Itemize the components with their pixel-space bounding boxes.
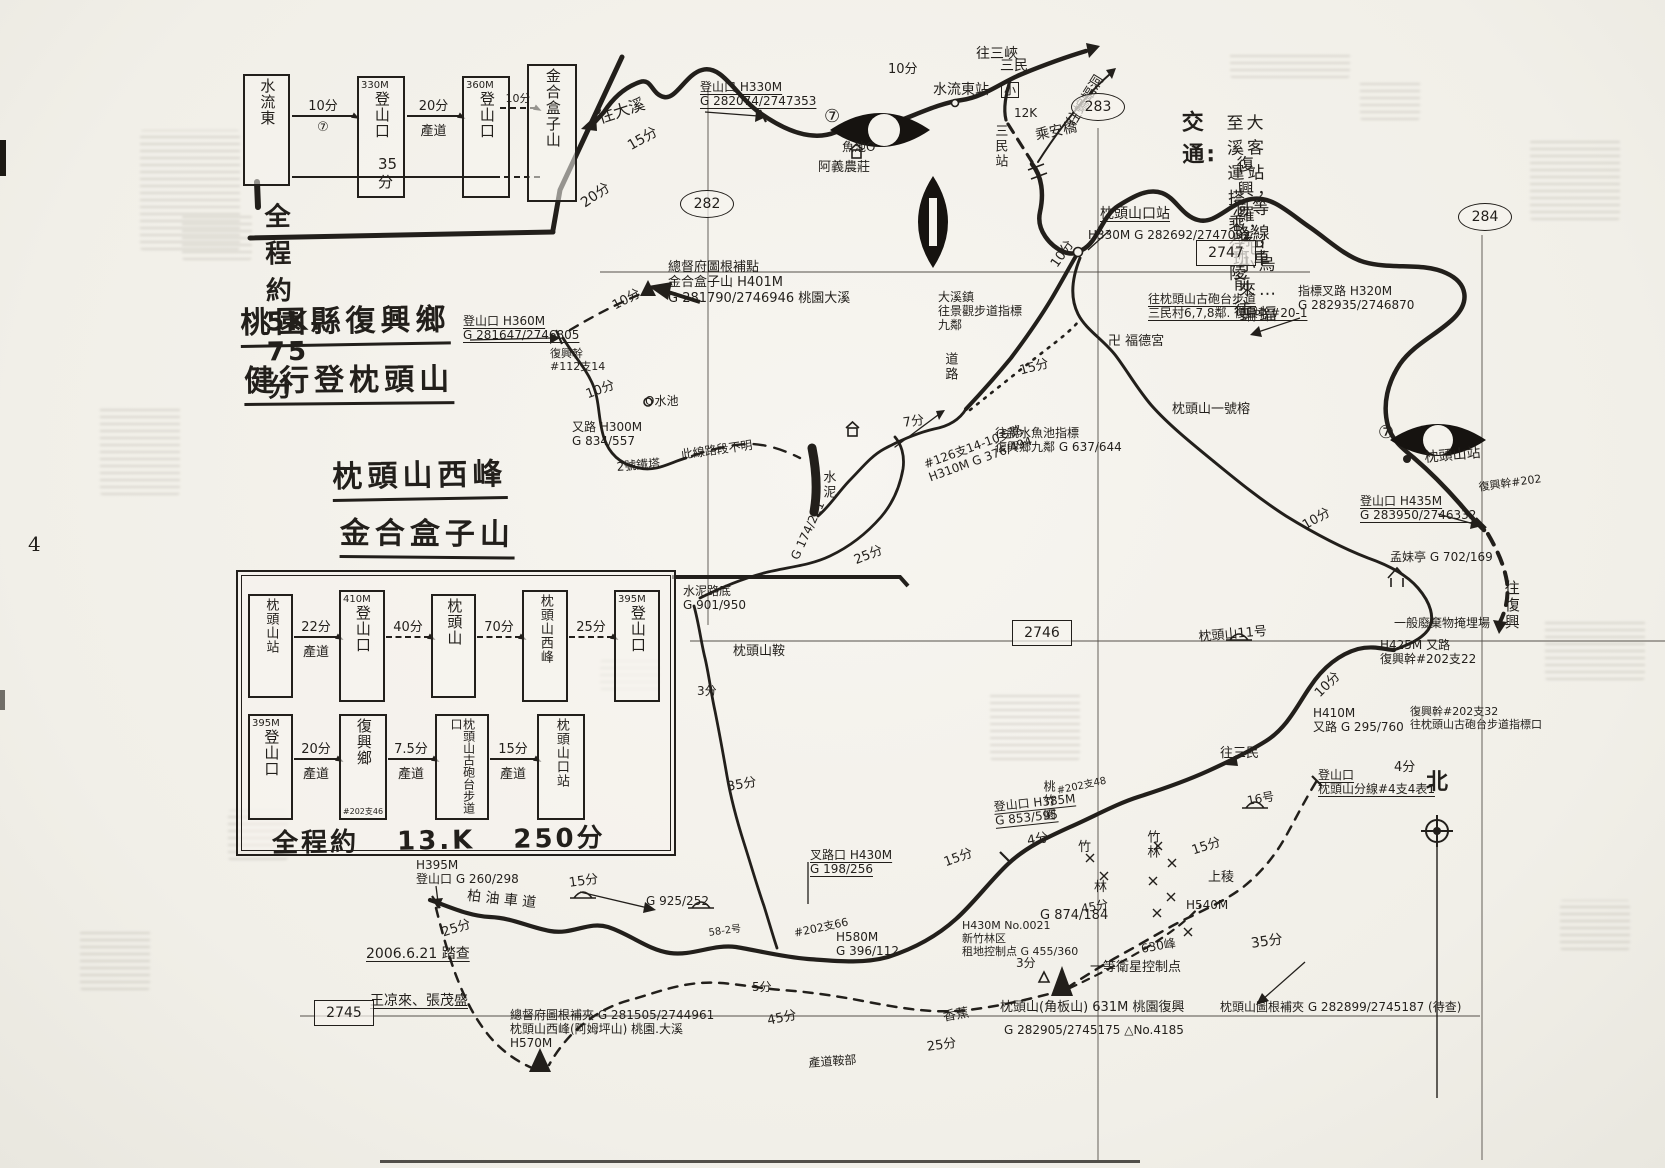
page-title-line: 枕頭山西峰	[332, 449, 508, 502]
map-label: 25分	[440, 917, 473, 941]
stop-elevation: 410M	[343, 595, 371, 605]
grid-oval-284: 284	[1458, 203, 1512, 231]
route-stop-name: 登山口	[478, 91, 494, 194]
map-label: 3分	[697, 684, 717, 698]
map-label: 15分	[625, 124, 661, 154]
total-time: 35分	[378, 156, 397, 191]
grid-box-2747: 2747	[1196, 240, 1256, 266]
route-stop-name: 金合盒子山	[544, 68, 560, 198]
route-stop-box: 金合盒子山	[527, 64, 577, 202]
leg-via: 產道	[294, 763, 338, 782]
map-label: H430M No.0021 新竹林区 租地控制点 G 455/360	[962, 920, 1078, 959]
route-leg: 25分	[569, 616, 613, 638]
map-label: 魚池O	[842, 140, 875, 154]
route-stop-name: 登山口	[263, 729, 279, 816]
map-label: 枕頭山站	[1424, 445, 1481, 466]
route-stop-name: 枕頭山站	[264, 598, 278, 694]
map-label: 小	[1001, 82, 1019, 98]
map-label: 15分	[942, 846, 975, 871]
scan-edge-mark	[0, 140, 6, 176]
leg-time: 20分	[407, 95, 460, 117]
map-label: 25分	[852, 543, 885, 568]
map-label: 柏 油 車 道	[466, 888, 537, 912]
map-label: 指標叉路 H320M G 282935/2746870	[1298, 284, 1414, 312]
map-label: 又路 H300M G 834/557	[572, 420, 642, 448]
map-label: 總督府圖根補夾 G 281505/2744961 枕頭山西峰(阿姆坪山) 桃園.…	[510, 1008, 714, 1050]
leg-time: 40分	[386, 616, 430, 638]
grid-label: 2747	[1208, 245, 1244, 261]
map-label: 10分	[1048, 238, 1078, 271]
map-label: 15分	[1190, 835, 1223, 859]
map-label: 10分	[888, 62, 918, 77]
map-label: 叉路口 H430M G 198/256	[810, 848, 892, 876]
map-label: 三民站	[992, 124, 1007, 169]
leg-via: 產道	[490, 763, 536, 782]
route-leg: 20分 產道	[407, 95, 460, 139]
route-leg: 70分	[477, 616, 521, 638]
route-leg: 7.5分 產道	[388, 738, 434, 782]
map-label: 登山口 H385M G 853/595	[993, 791, 1078, 828]
route-stop-box: 410M 登山口	[339, 590, 385, 702]
stop-elevation: 360M	[466, 81, 494, 91]
map-label: G 174/221	[788, 499, 827, 562]
scanned-map-page: 往大溪15分20分登山口 H330M G 282074/274735310分水流…	[0, 0, 1665, 1168]
map-label: 復興幹#202支32 往枕頭山古砲台步道指標口	[1410, 706, 1542, 732]
map-label: 35分	[1250, 932, 1284, 953]
map-label: 枕頭山鞍	[733, 644, 785, 659]
map-label: 一等衛星控制点	[1090, 960, 1181, 975]
route-stop-name: 水流東	[259, 78, 275, 182]
route-stop-name: 枕頭山口站	[554, 718, 568, 816]
leg-time: 70分	[477, 616, 521, 638]
page-title-line: 金合盒子山	[340, 508, 515, 560]
map-label: 三民	[1000, 58, 1028, 75]
map-label: 630峰	[1140, 936, 1177, 956]
scan-edge-mark	[0, 690, 5, 710]
map-label: 15分	[568, 872, 599, 891]
map-label: 孟妹亭 G 702/169	[1390, 550, 1493, 564]
map-label: 枕頭山口站	[1100, 206, 1170, 223]
map-label: 5分	[752, 980, 772, 994]
map-label: 枕頭山11号	[1198, 624, 1268, 645]
grid-box-2746: 2746	[1012, 620, 1072, 646]
map-label: H540M	[1186, 898, 1228, 912]
map-label: 10分	[584, 378, 617, 403]
map-label: 水泥路底 G 901/950	[683, 584, 746, 612]
map-label: 2號鐵塔	[616, 456, 661, 474]
map-label: 一般廢棄物掩埋場	[1394, 616, 1490, 630]
route-stop-box: 枕頭山西峰	[522, 590, 568, 702]
map-label: 卍 福德宮	[1108, 334, 1164, 349]
grid-label: 282	[694, 196, 721, 212]
route-summary: 全程約5K. 75分	[264, 196, 325, 405]
route-stop-name: 復興鄉	[355, 718, 371, 808]
map-label: 往枕頭山古砲台步道 三民村6,7,8鄰. 復興幹#20-1	[1148, 292, 1307, 320]
map-label: 王凉來、張茂盛	[370, 993, 468, 1010]
route-leg: 22分 產道	[294, 616, 338, 660]
map-label: 16号	[1246, 789, 1275, 808]
map-label: 總督府圖根補點 金合盒子山 H401M G 281790/2746946 桃園大…	[668, 260, 850, 306]
stop-elevation: 330M	[361, 81, 389, 91]
route-stop-box: 395M 登山口	[614, 590, 660, 702]
route-leg: 40分	[386, 616, 430, 638]
map-label: 竹林	[1144, 830, 1159, 860]
grid-label: 2746	[1024, 625, 1060, 641]
map-label: 15分	[1018, 356, 1051, 378]
map-label: 上稜	[1208, 870, 1234, 885]
map-label: 35分	[726, 775, 758, 795]
route-stop-box: 復興鄉 #202支46	[339, 714, 387, 820]
map-label: 10分	[1300, 505, 1333, 533]
stop-subnote: #202支46	[343, 808, 383, 816]
transport-heading: 交通:	[1181, 104, 1217, 169]
route-stop-name: 登山口	[354, 605, 370, 698]
stop-elevation: 395M	[252, 719, 280, 729]
leg-via: 產道	[388, 763, 434, 782]
map-label: 枕頭山(角板山) 631M 桃園復興	[1000, 1000, 1184, 1015]
map-label: 復興幹#202	[1478, 473, 1542, 495]
map-label: 25分	[926, 1036, 957, 1055]
route-leg: 15分 產道	[490, 738, 536, 782]
route-stop-name: 枕頭山	[446, 598, 462, 694]
map-label: 香蕉	[942, 1005, 970, 1025]
grid-label: 2745	[326, 1005, 362, 1021]
leg-time: 7.5分	[388, 738, 434, 760]
leg-time: 22分	[294, 616, 338, 638]
map-label: G 874/184	[1040, 908, 1108, 923]
map-label: 登山口 H360M G 281647/2746805	[463, 314, 579, 342]
grid-oval-282: 282	[680, 190, 734, 218]
map-label: ⑦	[1378, 422, 1394, 443]
map-label: H580M G 396/112	[836, 930, 899, 958]
grid-box-2745: 2745	[314, 1000, 374, 1026]
route-stop-name: 登山口	[629, 605, 645, 698]
route-leg: 10分 ⑦	[292, 95, 354, 135]
map-label: O水池	[645, 394, 678, 408]
map-label: 往復興	[1502, 580, 1520, 631]
route-stop-name: 枕頭山西峰	[538, 594, 552, 698]
map-label: H395M 登山口 G 260/298	[416, 858, 519, 886]
route-summary: 全程約 13.K 250分	[272, 817, 606, 860]
leg-via: 產道	[407, 120, 460, 139]
map-label: 20分	[578, 180, 614, 212]
map-label: 竹	[1078, 840, 1091, 855]
map-label: G 925/252	[646, 894, 709, 908]
map-label: 枕頭山一號榕	[1172, 402, 1250, 417]
grid-label: 283	[1085, 99, 1112, 115]
map-label: ⑦	[824, 106, 840, 127]
leg-via: 產道	[294, 641, 338, 660]
map-label: 阿義農莊	[818, 160, 870, 175]
map-label: 10分	[1312, 669, 1344, 701]
route-stop-box: 枕頭山古砲台步道口	[435, 714, 489, 820]
route-diagram-frame: 枕頭山站 22分 產道 410M 登山口 40分 枕頭山 70分 枕頭山西峰	[236, 570, 676, 856]
map-label: H410M 又路 G 295/760	[1313, 706, 1404, 734]
map-label: 水泥	[820, 470, 835, 500]
map-label: 道路	[942, 352, 957, 382]
route-stop-name: 枕頭山古砲台步道口	[449, 718, 474, 816]
route-stop-box: 枕頭山站	[248, 594, 293, 698]
leg-time: 15分	[490, 738, 536, 760]
map-label: 登山口 H435M G 283950/2746332	[1360, 494, 1476, 522]
map-label: #126支14-10支路 H310M G 376/494	[922, 421, 1034, 485]
route-stop-box: 水流東	[243, 74, 290, 186]
page-number: 4	[28, 532, 41, 556]
map-label: 產道鞍部	[808, 1053, 857, 1070]
leg-time: 20分	[294, 738, 338, 760]
stop-elevation: 395M	[618, 595, 646, 605]
map-label: 此線路段不明	[680, 438, 753, 462]
route-stop-box: 枕頭山口站	[537, 714, 585, 820]
map-label: 7分	[902, 413, 925, 431]
map-label: 登山口 H330M G 282074/2747353	[700, 80, 816, 108]
route-leg: 20分 產道	[294, 738, 338, 782]
map-label: 往大溪	[596, 95, 647, 128]
map-label: 往三民	[1220, 746, 1259, 761]
map-label: 4分	[1026, 830, 1050, 849]
north-label: 北	[1426, 764, 1448, 796]
scan-edge-mark	[380, 1160, 1140, 1163]
map-label: #202支48	[1056, 776, 1108, 798]
map-label: 登山口 枕頭山分線#4支4表1	[1318, 768, 1435, 796]
grid-label: 284	[1472, 209, 1499, 225]
map-label: H425M 又路 復興幹#202支22	[1380, 638, 1476, 666]
map-label: 2006.6.21 踏查	[366, 946, 470, 963]
map-label: 10分	[610, 286, 643, 313]
map-label: 12K	[1014, 106, 1037, 120]
map-label: 58-2号	[708, 923, 742, 939]
map-label: 枕頭山圖根補夾 G 282899/2745187 (待查)	[1220, 1000, 1461, 1014]
map-label: 45分	[766, 1008, 798, 1029]
map-label: 林	[1094, 880, 1107, 895]
route-stop-box: 395M 登山口	[248, 714, 293, 820]
map-label: 大溪鎮 往景觀步道指標 九鄰	[938, 290, 1022, 332]
leg-via: ⑦	[292, 120, 354, 135]
map-label: 水流東站	[933, 82, 989, 99]
route-stop-box: 枕頭山	[431, 594, 476, 698]
grid-oval-283: 283	[1071, 93, 1125, 121]
map-label: 3分	[1016, 956, 1036, 970]
map-label: 復興幹 #112支14	[550, 348, 605, 374]
map-label: G 282905/2745175 △No.4185	[1004, 1023, 1184, 1037]
leg-time: 10分	[292, 95, 354, 117]
leg-time: 25分	[569, 616, 613, 638]
